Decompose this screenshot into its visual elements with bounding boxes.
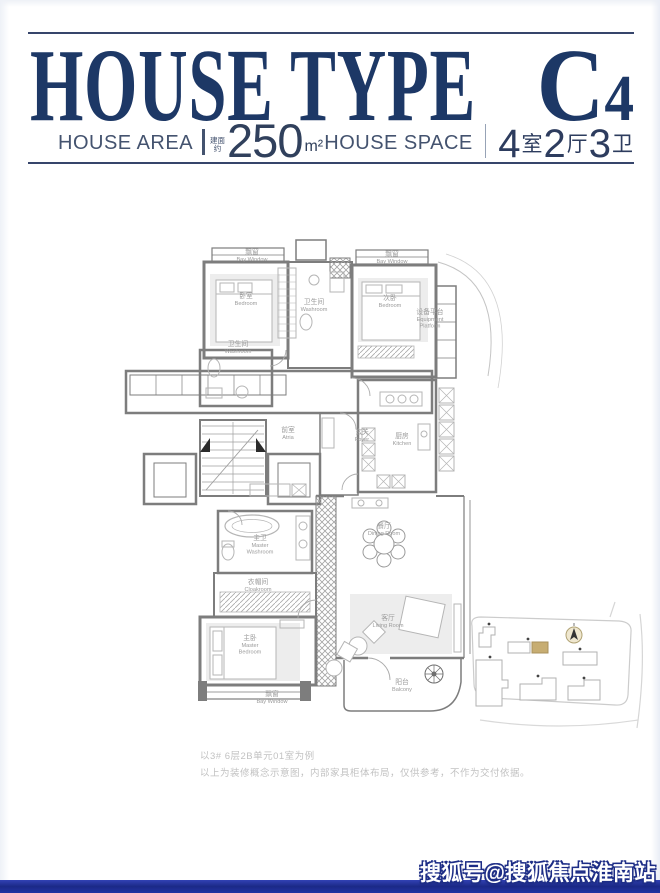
plant-icon — [425, 665, 443, 683]
tv-console — [454, 604, 461, 652]
space-hall-unit: 厅 — [567, 128, 588, 158]
space-bath-count: 3 — [589, 128, 611, 160]
header-subrow: HOUSE AREA 建面 约 250 m² HOUSE SPACE 4 室 2… — [58, 116, 634, 160]
radiator — [358, 346, 414, 358]
area-divider — [202, 129, 205, 155]
room-label-bay-window-3: 飘窗Bay Window — [256, 689, 288, 705]
house-area-group: HOUSE AREA 建面 约 250 m² — [58, 123, 323, 160]
space-hall-count: 2 — [544, 128, 566, 160]
space-bath-unit: 卫 — [612, 128, 633, 158]
edge-tint-left — [0, 0, 9, 880]
service-shaft — [439, 388, 454, 471]
stair-treads — [202, 422, 264, 494]
room-label-master-washroom: 主卫MasterWashroom — [247, 533, 274, 556]
house-space-label: HOUSE SPACE — [324, 132, 473, 155]
north-arrow-icon — [566, 623, 582, 643]
header-rule-bottom — [28, 162, 634, 164]
highlighted-building — [532, 642, 548, 653]
house-area-unit: m² — [304, 138, 323, 156]
edge-tint-top — [0, 0, 660, 7]
house-area-label: HOUSE AREA — [58, 132, 193, 155]
shoe-cabinet — [322, 418, 334, 448]
disclaimer-line-1: 以3# 6层2B单元01室为例 — [200, 748, 530, 765]
master-washroom-walls — [218, 511, 312, 573]
kitchen-counter — [362, 392, 430, 488]
room-label-washroom-2: 卫生间Washroom — [225, 339, 252, 355]
space-divider — [485, 124, 487, 158]
site-key-plan — [472, 602, 643, 728]
room-label-balcony: 阳台Balcony — [392, 677, 412, 693]
house-space-group: HOUSE SPACE 4 室 2 厅 3 卫 — [324, 124, 634, 160]
equipment-platform-shaft — [436, 286, 456, 378]
room-label-cloakroom: 衣帽间Cloakroom — [244, 577, 271, 593]
facade-curves — [438, 254, 502, 388]
disclaimer-line-2: 以上为装修概念示意图，内部家具柜体布局，仅供参考，不作为交付依据。 — [200, 765, 530, 782]
space-bedroom-unit: 室 — [522, 128, 543, 158]
disclaimer: 以3# 6层2B单元01室为例 以上为装修概念示意图，内部家具柜体布局，仅供参考… — [200, 748, 530, 782]
area-prefix: 建面 约 — [210, 137, 225, 153]
watermark: 搜狐号@搜狐焦点淮南站 — [420, 857, 656, 887]
room-label-equipment-platform: 设备平台EquipmentPlatform — [416, 307, 443, 330]
space-bedroom-count: 4 — [498, 128, 520, 160]
structural-strip — [316, 496, 336, 686]
house-area-value: 250 — [227, 123, 302, 160]
room-label-washroom-1: 卫生间Washroom — [301, 297, 328, 313]
room-label-kitchen: 厨房Kitchen — [393, 431, 412, 447]
floor-plan: 飘窗Bay Window卧室Bedroom卫生间Washroom飘窗Bay Wi… — [100, 228, 645, 748]
cloakroom-wardrobe — [220, 592, 310, 612]
bathtub — [225, 515, 279, 537]
poster: HOUSE TYPE C4 HOUSE AREA 建面 约 250 m² HOU… — [0, 0, 660, 893]
edge-tint-right — [651, 0, 660, 880]
room-label-foyer: 玄关Foyer — [355, 427, 369, 443]
room-label-atria: 前室Atria — [281, 425, 295, 441]
foyer-walls — [320, 413, 358, 495]
